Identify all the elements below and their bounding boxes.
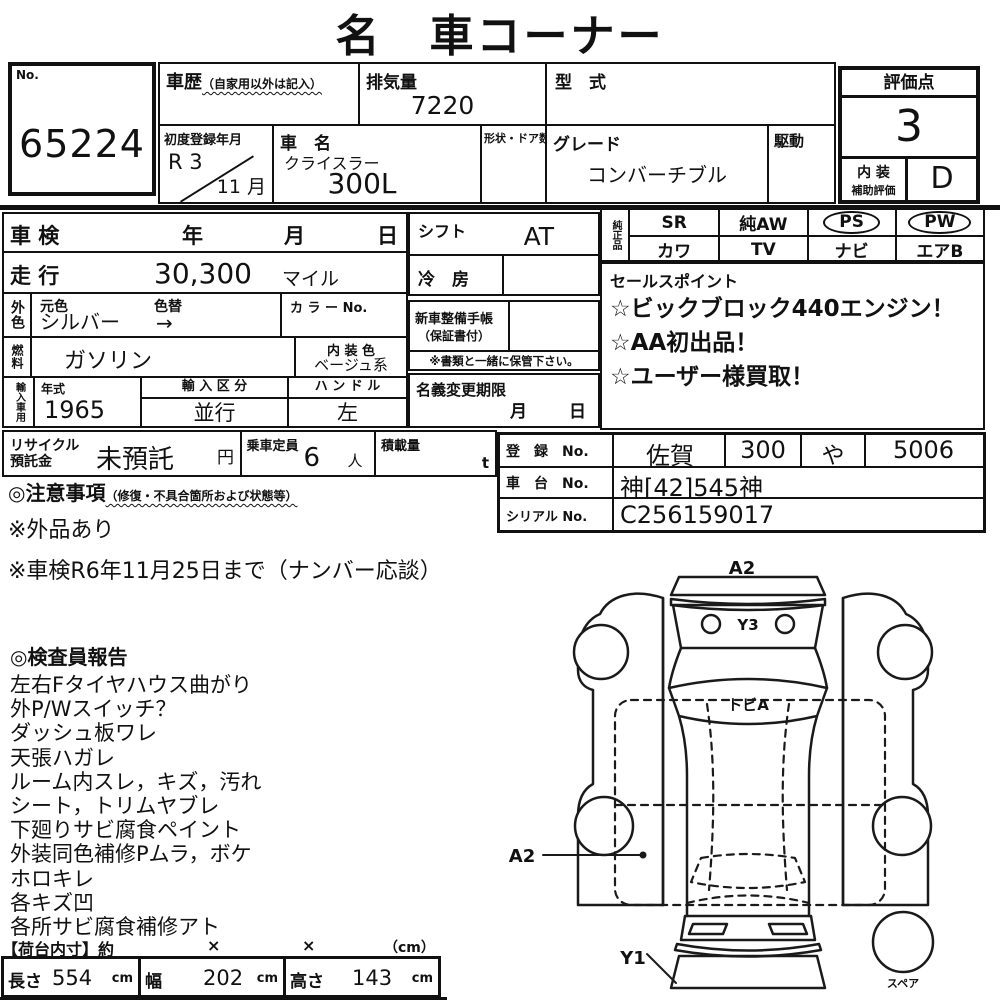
diagram-label-tobi: トビA bbox=[727, 696, 769, 714]
handle-cell: ハ ン ド ル 左 bbox=[287, 378, 406, 426]
sales-point: ☆ビックブロック440エンジン！ bbox=[610, 292, 979, 326]
inspector-line: 外P/Wスイッチ？ bbox=[10, 697, 261, 721]
chassis-value: 神[42]545神 bbox=[620, 468, 763, 503]
hood-dashed bbox=[687, 896, 809, 904]
genuine-item-aw: 純AW bbox=[718, 210, 806, 237]
capacity-unit: 人 bbox=[347, 450, 362, 471]
import-class-label: 輸 入 区 分 bbox=[142, 378, 287, 399]
recycle-deposit-cell: リサイクル 預託金 未預託 円 bbox=[2, 430, 242, 477]
body-left-edge-upper bbox=[669, 648, 681, 688]
grade-value: コンバーチブル bbox=[547, 159, 767, 188]
body-right-edge-lower bbox=[809, 716, 817, 916]
car-name-cell: 車 名 クライスラー 300L bbox=[272, 124, 482, 204]
color-change-value: → bbox=[156, 311, 173, 335]
car-damage-diagram: A2 Y3 トビA A2 Y1 スペア bbox=[495, 558, 995, 1000]
first-registration-cell: 初度登録年月 R 3 11 月 bbox=[158, 124, 274, 204]
right-front-wheel bbox=[878, 625, 932, 679]
first-registration-year: R 3 bbox=[168, 150, 203, 174]
cautions-heading: ◎注意事項 bbox=[8, 481, 105, 505]
left-rear-wheel bbox=[575, 797, 633, 855]
body-doors-cell: 形状・ドア数 bbox=[480, 124, 547, 204]
displacement-cell: 排気量 7220 bbox=[358, 62, 547, 126]
keep-note: ※書類と一緒に保管下さい。 bbox=[410, 353, 598, 369]
car-model: 300L bbox=[274, 167, 450, 200]
color-no-label: カ ラ ー No. bbox=[290, 297, 367, 316]
serial-label: シリアル No. bbox=[506, 506, 587, 525]
history-cell: 車歴（自家用以外は記入） bbox=[158, 62, 360, 126]
front-bumper bbox=[675, 944, 821, 957]
dimension-width-cell: 幅 202 cm bbox=[138, 956, 286, 998]
lot-number-box: No. 65224 bbox=[8, 62, 156, 196]
inspector-line: ホロキレ bbox=[10, 867, 261, 891]
model-code-cell: 型 式 bbox=[545, 62, 836, 126]
first-registration-month: 11 月 bbox=[217, 172, 266, 199]
open-cabin-dashed bbox=[615, 700, 885, 905]
chassis-label: 車 台 No. bbox=[506, 473, 589, 493]
shift-label: シフト bbox=[418, 218, 466, 242]
serial-value: C256159017 bbox=[620, 501, 774, 529]
genuine-item-pw: PW bbox=[895, 210, 983, 237]
diagram-label-rear-a2: A2 bbox=[729, 558, 755, 579]
diagram-label-y1: Y1 bbox=[619, 948, 646, 969]
import-class-value: 並行 bbox=[142, 399, 287, 427]
color-no-cell: カ ラ ー No. bbox=[280, 294, 406, 336]
grade-label: グレード bbox=[553, 130, 621, 155]
sales-points-label: セールスポイント bbox=[610, 268, 738, 292]
spare-tire bbox=[873, 912, 933, 972]
load-label: 積載量 bbox=[381, 435, 420, 454]
exterior-color-row: 外色 元色 色替 シルバー → カ ラ ー No. bbox=[2, 292, 408, 338]
left-hinge-circle bbox=[702, 615, 720, 633]
windshield-dashed bbox=[691, 854, 805, 888]
fuel-value: ガソリン bbox=[64, 343, 152, 375]
displacement-label: 排気量 bbox=[366, 68, 417, 93]
cautions-heading-note: （修復・不具合箇所および状態等） bbox=[105, 489, 297, 503]
capacity-label: 乗車定員 bbox=[247, 435, 299, 454]
left-headlight bbox=[689, 924, 727, 934]
inspector-line: 各キズ凹 bbox=[10, 891, 261, 915]
ac-cell: 冷 房 bbox=[408, 254, 600, 296]
recycle-label-2: 預託金 bbox=[10, 451, 52, 471]
diagram-label-spare: スペア bbox=[887, 977, 919, 990]
dimensions-unit-note: （cm） bbox=[384, 937, 435, 957]
dimensions-times-1: × bbox=[207, 936, 220, 955]
lot-number-value: 65224 bbox=[12, 122, 152, 166]
genuine-parts-label: 純正品 bbox=[602, 210, 630, 260]
genuine-parts-box: 純正品 SR 純AW PS PW カワ TV ナビ エアB bbox=[600, 208, 985, 262]
diagram-label-y3: Y3 bbox=[736, 616, 758, 634]
history-note: （自家用以外は記入） bbox=[202, 77, 322, 91]
dimensions-heading-row: 【荷台内寸】約 × × （cm） bbox=[2, 936, 442, 956]
mileage-row: 走 行 30,300 マイル bbox=[2, 251, 408, 294]
handle-label: ハ ン ド ル bbox=[289, 378, 406, 399]
genuine-item-ps: PS bbox=[807, 210, 895, 237]
inspector-line: 外装同色補修Pムラ，ボケ bbox=[10, 842, 261, 866]
recycle-unit: 円 bbox=[217, 443, 234, 468]
right-headlight bbox=[769, 924, 807, 934]
shaken-year: 年 bbox=[182, 220, 203, 250]
registration-label: 登 録 No. bbox=[506, 441, 589, 461]
drive-cell: 駆動 bbox=[767, 124, 836, 204]
ac-divider bbox=[502, 256, 504, 294]
registration-number: 5006 bbox=[868, 436, 979, 464]
inspector-line: シート，トリムヤブレ bbox=[10, 794, 261, 818]
body-right-edge-upper bbox=[815, 648, 827, 688]
registration-table: 登 録 No. 佐賀 300 や 5006 車 台 No. 神[42]545神 … bbox=[497, 432, 986, 533]
import-row: 輸入車用 年式 1965 輸 入 区 分 並行 ハ ン ド ル 左 bbox=[2, 376, 408, 428]
dimension-height-cell: 高さ 143 cm bbox=[283, 956, 441, 998]
service-book-label: 新車整備手帳 bbox=[415, 308, 493, 327]
lot-number-label: No. bbox=[16, 68, 39, 82]
fuel-row: 燃料 ガソリン 内 装 色 ベージュ系 bbox=[2, 336, 408, 378]
interior-color-cell: 内 装 色 ベージュ系 bbox=[294, 338, 406, 376]
exterior-color-label: 外色 bbox=[4, 294, 32, 336]
service-book-cell: 新車整備手帳 （保証書付） bbox=[408, 300, 600, 352]
inspector-line: 天張ハガレ bbox=[10, 746, 261, 770]
capacity-value: 6 bbox=[304, 443, 321, 473]
inspector-section: ◎検査員報告 左右Fタイヤハウス曲がり 外P/Wスイッチ？ ダッシュ板ワレ 天張… bbox=[10, 641, 261, 939]
interior-score-row: 内 装 補助評価 D bbox=[842, 156, 976, 200]
body-doors-label: 形状・ドア数 bbox=[484, 130, 550, 146]
caution-line: ※車検R6年11月25日まで（ナンバー応談） bbox=[8, 553, 442, 585]
score-box: 評価点 3 内 装 補助評価 D bbox=[838, 66, 980, 204]
interior-color-value: ベージュ系 bbox=[296, 354, 406, 375]
registration-kana: や bbox=[804, 436, 862, 470]
handle-value: 左 bbox=[289, 399, 406, 427]
import-label: 輸入車用 bbox=[4, 378, 35, 426]
inspector-line: ダッシュ板ワレ bbox=[10, 721, 261, 745]
genuine-item-kawa: カワ bbox=[630, 237, 718, 262]
displacement-value: 7220 bbox=[360, 91, 525, 120]
transfer-cell: 名義変更期限 月 日 bbox=[408, 373, 600, 428]
shift-cell: シフト AT bbox=[408, 212, 600, 256]
registration-area: 佐賀 bbox=[620, 436, 720, 471]
score-label: 評価点 bbox=[842, 70, 976, 98]
inspector-heading: ◎検査員報告 bbox=[10, 641, 261, 670]
mileage-value: 30,300 bbox=[154, 257, 252, 290]
transfer-day: 日 bbox=[569, 397, 586, 422]
fuel-label: 燃料 bbox=[4, 338, 32, 376]
model-year-label: 年式 bbox=[41, 380, 65, 397]
sales-point: ☆ユーザー様買取！ bbox=[610, 360, 979, 394]
inspector-line: ルーム内スレ，キズ，汚れ bbox=[10, 770, 261, 794]
transfer-label: 名義変更期限 bbox=[416, 379, 506, 400]
page-title: 名 車コーナー bbox=[0, 0, 1000, 64]
interior-score-label: 内 装 補助評価 bbox=[842, 159, 908, 200]
load-unit: t bbox=[482, 454, 489, 472]
original-color-value: シルバー bbox=[40, 306, 120, 335]
serial-row: シリアル No. C256159017 bbox=[500, 499, 983, 530]
shaken-day: 日 bbox=[377, 220, 398, 250]
inspector-line: 下廻りサビ腐食ペイント bbox=[10, 818, 261, 842]
dimensions-times-2: × bbox=[302, 936, 315, 955]
genuine-item-navi: ナビ bbox=[807, 237, 895, 262]
inspector-lines: 左右Fタイヤハウス曲がり 外P/Wスイッチ？ ダッシュ板ワレ 天張ハガレ ルーム… bbox=[10, 673, 261, 939]
shift-value: AT bbox=[524, 222, 554, 251]
ac-label: 冷 房 bbox=[418, 265, 469, 290]
left-a2-dot bbox=[640, 852, 647, 859]
service-book-divider bbox=[508, 302, 510, 350]
left-front-wheel bbox=[574, 625, 628, 679]
dimension-length-cell: 長さ 554 cm bbox=[1, 956, 141, 998]
front-skirt bbox=[671, 956, 825, 988]
mileage-label: 走 行 bbox=[10, 260, 59, 290]
service-book-note: （保証書付） bbox=[418, 327, 490, 344]
genuine-item-tv: TV bbox=[718, 237, 806, 262]
body-left-edge-lower bbox=[679, 716, 687, 916]
keep-note-strip: ※書類と一緒に保管下さい。 bbox=[408, 350, 600, 371]
inspector-line: 左右Fタイヤハウス曲がり bbox=[10, 673, 261, 697]
first-registration-label: 初度登録年月 bbox=[164, 129, 242, 148]
shaken-label: 車 検 bbox=[10, 220, 59, 250]
genuine-item-airbag: エアB bbox=[895, 237, 983, 262]
chassis-row: 車 台 No. 神[42]545神 bbox=[500, 468, 983, 499]
score-value: 3 bbox=[842, 98, 976, 158]
capacity-cell: 乗車定員 6 人 bbox=[240, 430, 377, 477]
model-year-value: 1965 bbox=[44, 396, 105, 424]
import-class-cell: 輸 入 区 分 並行 bbox=[140, 378, 287, 426]
load-cell: 積載量 t bbox=[374, 430, 497, 477]
genuine-parts-grid: SR 純AW PS PW カワ TV ナビ エアB bbox=[630, 210, 983, 260]
sales-points-list: ☆ビックブロック440エンジン！ ☆AA初出品！ ☆ユーザー様買取！ bbox=[610, 292, 979, 394]
diagram-label-left-a2: A2 bbox=[509, 846, 535, 867]
right-hinge-circle bbox=[776, 615, 794, 633]
mileage-unit: マイル bbox=[282, 264, 339, 291]
grade-cell: グレード コンバーチブル bbox=[545, 124, 769, 204]
front-clip bbox=[671, 916, 825, 988]
interior-score-value: D bbox=[908, 159, 976, 200]
history-label: 車歴 bbox=[166, 72, 202, 93]
registration-class: 300 bbox=[728, 436, 798, 464]
sales-points-box: セールスポイント ☆ビックブロック440エンジン！ ☆AA初出品！ ☆ユーザー様… bbox=[600, 262, 985, 430]
caution-line: ※外品あり bbox=[8, 512, 442, 544]
auction-sheet: 名 車コーナー No. 65224 車歴（自家用以外は記入） 排気量 7220 … bbox=[0, 0, 1000, 1000]
drive-label: 駆動 bbox=[774, 130, 804, 151]
recycle-value: 未預託 bbox=[96, 439, 174, 476]
y1-leader bbox=[647, 954, 676, 983]
transfer-month: 月 bbox=[510, 397, 527, 422]
genuine-item-sr: SR bbox=[630, 210, 718, 237]
registration-row: 登 録 No. 佐賀 300 や 5006 bbox=[500, 435, 983, 468]
shaken-month: 月 bbox=[284, 220, 305, 250]
model-code-label: 型 式 bbox=[555, 68, 606, 93]
shaken-row: 車 検 年 月 日 bbox=[2, 212, 408, 253]
sales-point: ☆AA初出品！ bbox=[610, 326, 979, 360]
cautions-section: ◎注意事項（修復・不具合箇所および状態等） ※外品あり ※車検R6年11月25日… bbox=[8, 477, 442, 585]
